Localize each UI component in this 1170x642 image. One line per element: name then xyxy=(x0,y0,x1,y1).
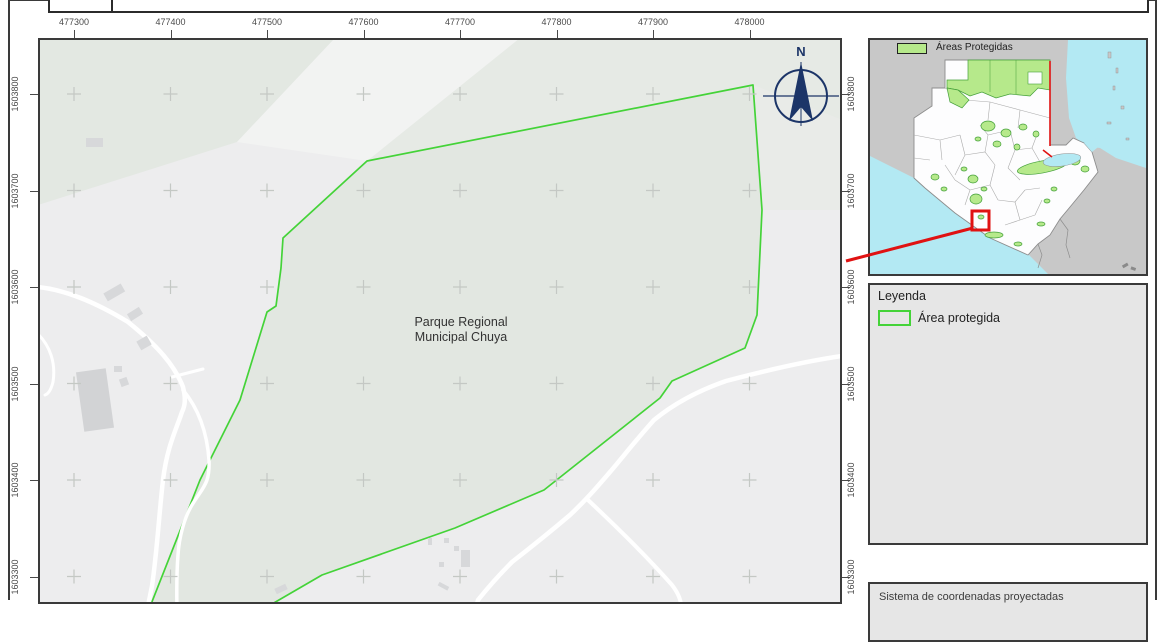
x-axis-tick xyxy=(460,30,461,38)
y-axis-tick-left xyxy=(30,577,38,578)
x-axis-label: 477800 xyxy=(541,17,571,27)
x-axis-tick xyxy=(557,30,558,38)
reserve-hole xyxy=(1028,72,1042,84)
park-name-label: Parque Regional Municipal Chuya xyxy=(414,315,507,345)
x-axis-tick xyxy=(364,30,365,38)
x-axis-label: 477600 xyxy=(348,17,378,27)
y-axis-tick-left xyxy=(30,384,38,385)
y-axis-tick-right xyxy=(842,191,850,192)
legend-panel: Leyenda Área protegida xyxy=(868,283,1148,545)
y-axis-tick-left xyxy=(30,191,38,192)
inset-overview-map: Áreas Protegidas xyxy=(868,38,1148,276)
x-axis-tick xyxy=(653,30,654,38)
y-axis-tick-left xyxy=(30,287,38,288)
y-axis-tick-right xyxy=(842,384,850,385)
y-axis-tick-left xyxy=(30,94,38,95)
legend-title: Leyenda xyxy=(878,289,926,303)
y-axis-label-left: 1603600 xyxy=(10,269,20,304)
page-border-right xyxy=(1155,0,1157,600)
x-axis-label: 477900 xyxy=(638,17,668,27)
x-axis-label: 477300 xyxy=(59,17,89,27)
x-axis-tick xyxy=(74,30,75,38)
y-axis-tick-right xyxy=(842,577,850,578)
y-axis-label-left: 1603800 xyxy=(10,76,20,111)
x-axis-label: 478000 xyxy=(734,17,764,27)
y-axis-label-left: 1603500 xyxy=(10,366,20,401)
y-axis-tick-right xyxy=(842,94,850,95)
inset-legend-swatch xyxy=(897,43,927,54)
y-axis-label-left: 1603700 xyxy=(10,173,20,208)
y-axis-label-left: 1603400 xyxy=(10,462,20,497)
x-axis-tick xyxy=(171,30,172,38)
coordinate-system-note: Sistema de coordenadas proyectadas xyxy=(879,591,1064,603)
x-axis-label: 477700 xyxy=(445,17,475,27)
y-axis-tick-right xyxy=(842,287,850,288)
title-block xyxy=(48,0,1149,13)
footer-panel: Sistema de coordenadas proyectadas xyxy=(868,582,1148,642)
legend-protected-area-swatch xyxy=(878,310,911,326)
title-block-divider xyxy=(111,0,113,11)
inset-legend-label: Áreas Protegidas xyxy=(936,42,1013,53)
y-axis-tick-right xyxy=(842,480,850,481)
x-axis-tick xyxy=(750,30,751,38)
x-axis-tick xyxy=(267,30,268,38)
legend-item-label: Área protegida xyxy=(918,311,1000,325)
x-axis-label: 477500 xyxy=(252,17,282,27)
x-axis-label: 477400 xyxy=(155,17,185,27)
y-axis-label-left: 1603300 xyxy=(10,559,20,594)
map-layout-page: { "main_map": { "x_axis_labels": ["47730… xyxy=(0,0,1170,600)
y-axis-tick-left xyxy=(30,480,38,481)
north-label: N xyxy=(796,44,805,59)
